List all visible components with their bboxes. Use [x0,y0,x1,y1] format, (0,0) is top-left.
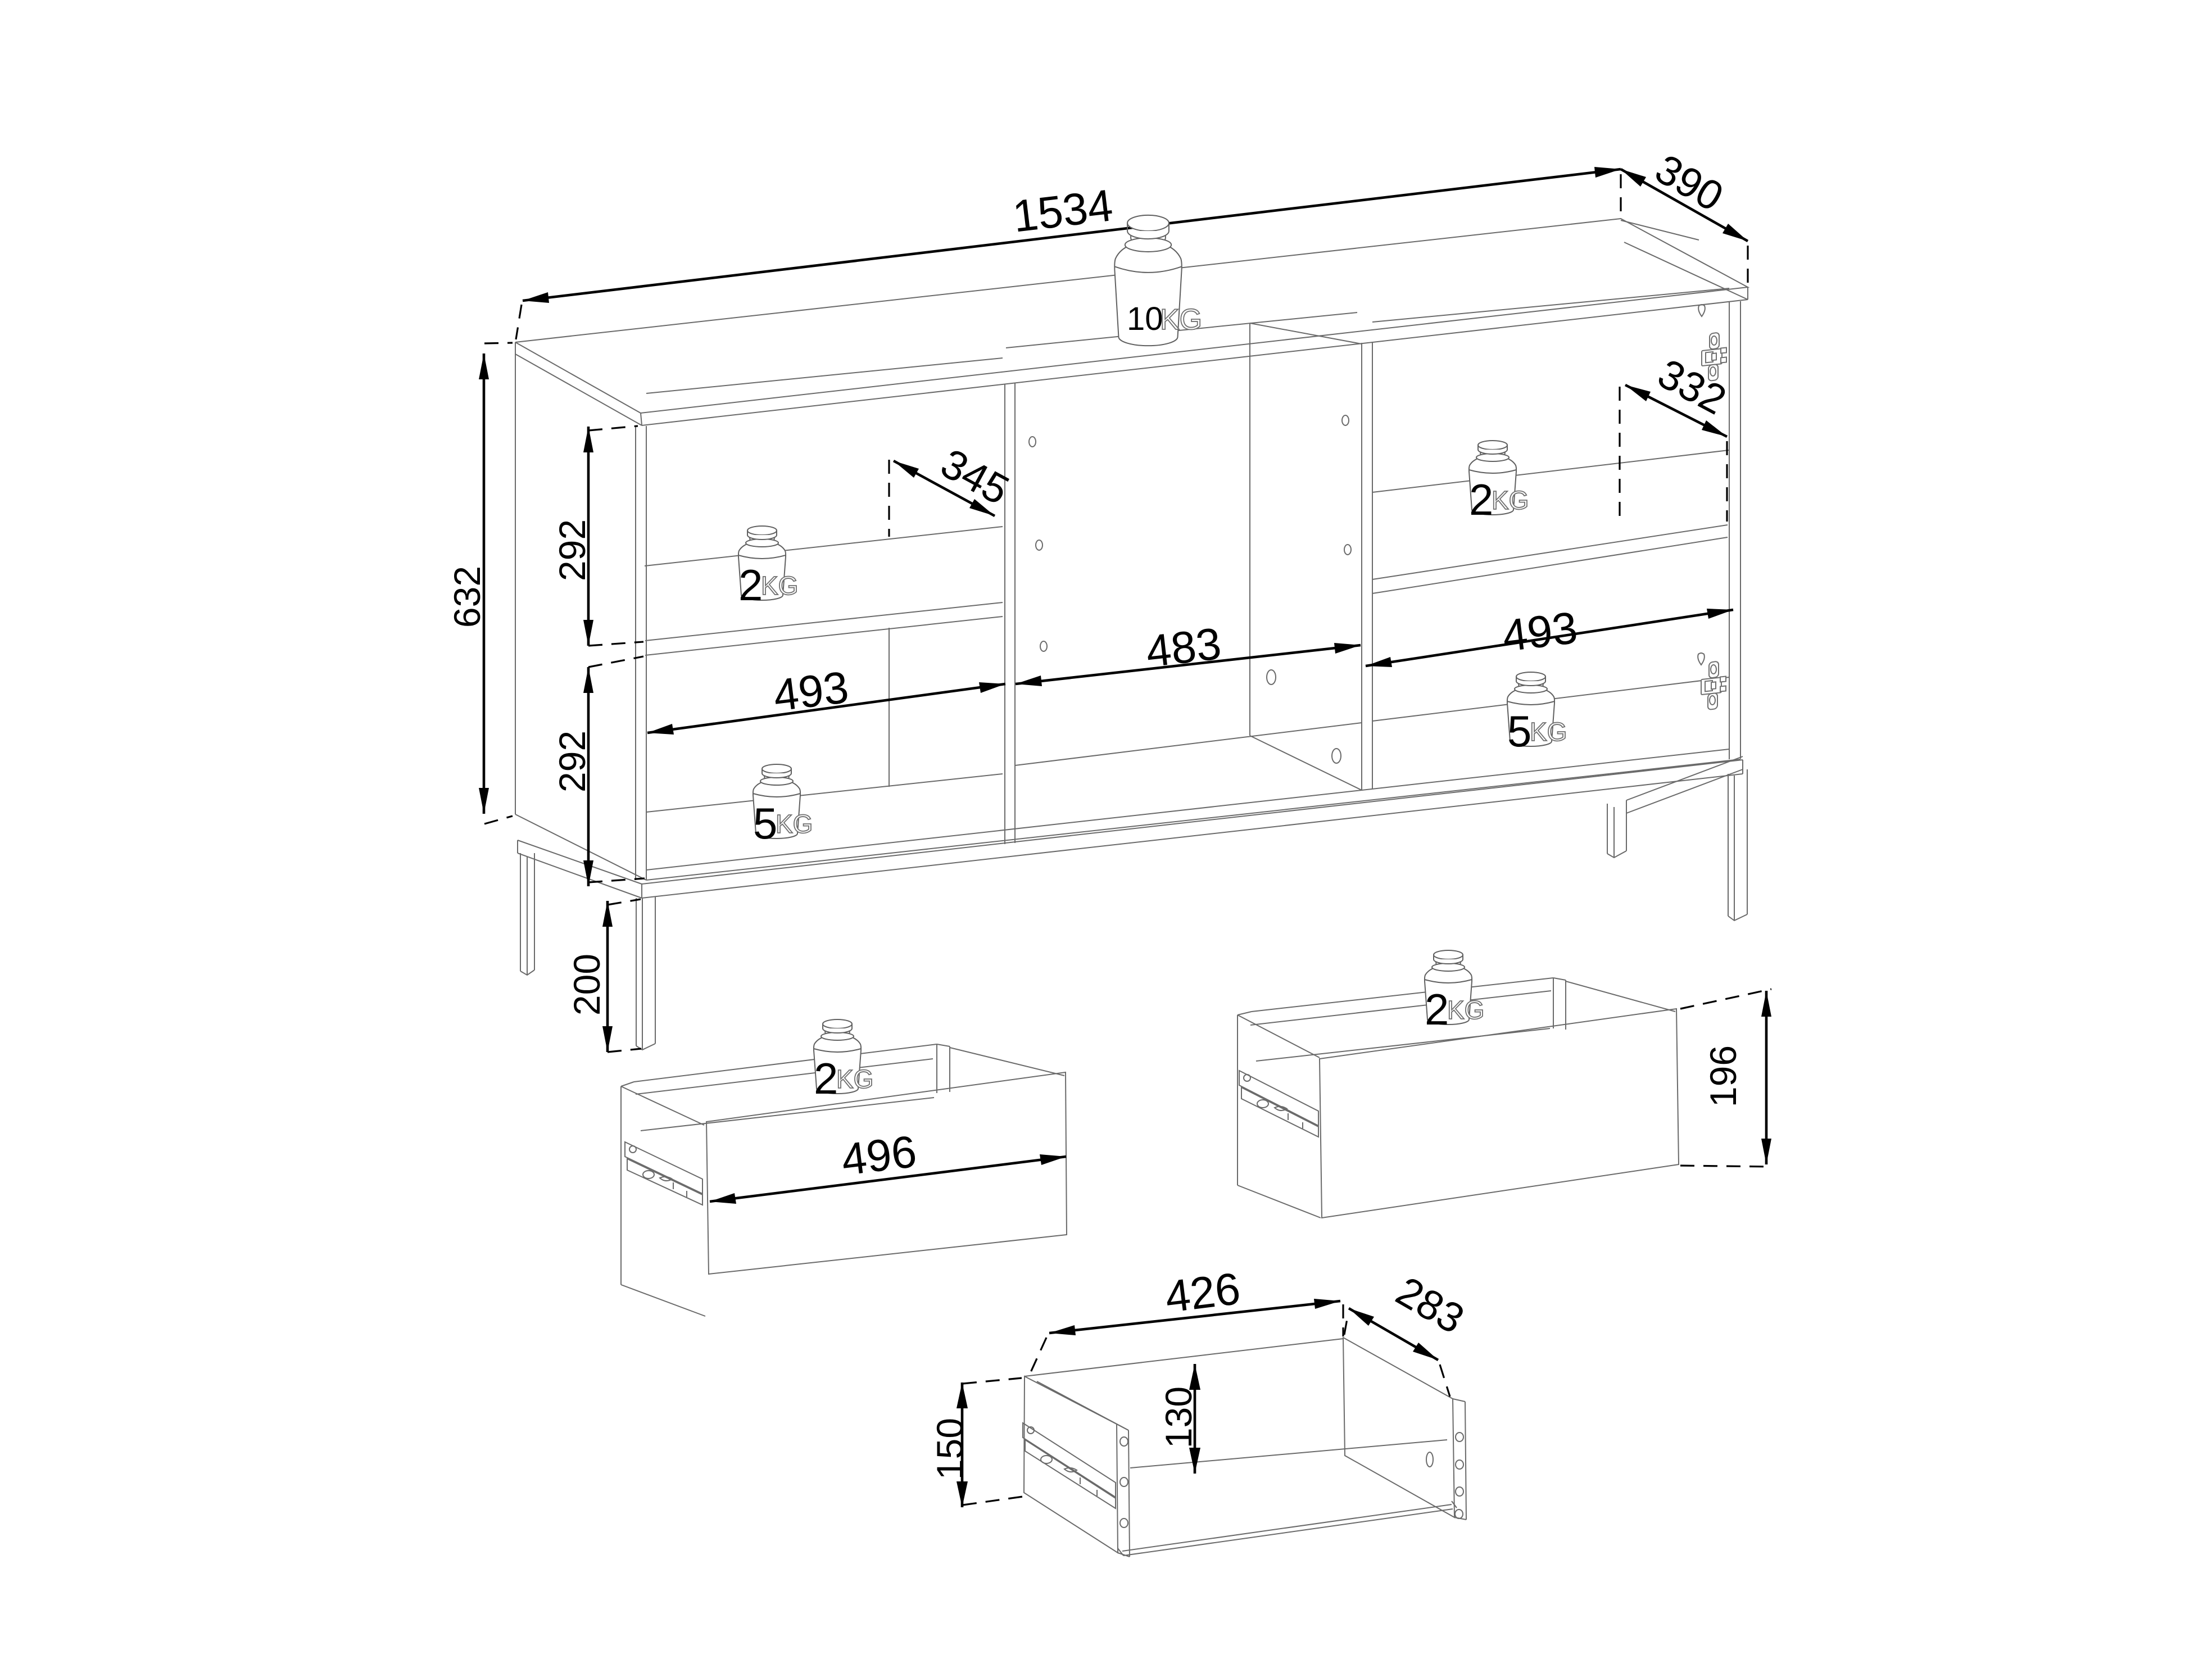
svg-text:292: 292 [551,731,593,792]
svg-text:KG: KG [1160,303,1202,336]
svg-text:KG: KG [836,1064,873,1094]
svg-text:196: 196 [1702,1045,1744,1107]
svg-text:5: 5 [753,799,777,848]
svg-text:2: 2 [814,1054,838,1103]
svg-text:496: 496 [838,1126,919,1185]
svg-text:292: 292 [551,519,593,581]
svg-text:493: 493 [770,662,851,721]
svg-text:130: 130 [1158,1386,1199,1448]
svg-text:2: 2 [1469,475,1493,524]
svg-text:KG: KG [776,809,813,838]
svg-text:2: 2 [738,560,763,610]
svg-text:10: 10 [1127,301,1163,337]
svg-text:KG: KG [1447,995,1484,1025]
svg-text:2: 2 [1425,985,1449,1034]
svg-text:150: 150 [929,1418,971,1480]
svg-text:KG: KG [761,571,798,600]
svg-text:426: 426 [1162,1263,1243,1322]
svg-text:493: 493 [1499,602,1580,661]
svg-text:200: 200 [566,954,608,1016]
svg-text:483: 483 [1144,618,1224,677]
svg-text:5: 5 [1507,706,1531,756]
svg-text:KG: KG [1530,717,1567,746]
svg-text:KG: KG [1492,486,1529,515]
svg-text:632: 632 [446,566,488,628]
